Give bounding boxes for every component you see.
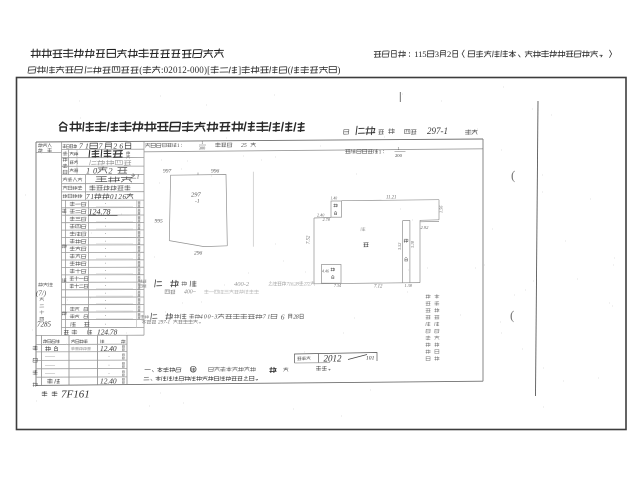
svg-text:(: ( (510, 308, 514, 323)
svg-text:1: 1 (201, 140, 203, 145)
svg-text:·: · (105, 246, 107, 252)
svg-text:·: · (105, 276, 107, 282)
svg-text:7.12: 7.12 (374, 284, 383, 289)
svg-text:200: 200 (395, 153, 403, 158)
svg-text:(: ( (139, 65, 142, 75)
svg-text:(: ( (288, 65, 291, 75)
svg-text:115: 115 (414, 49, 426, 59)
svg-text:——: —— (44, 364, 56, 369)
svg-text:1: 1 (136, 174, 139, 181)
svg-text:297-1: 297-1 (427, 126, 448, 136)
svg-text:3.18: 3.18 (410, 241, 415, 248)
svg-text:7.34: 7.34 (334, 283, 341, 288)
svg-text:): ) (337, 65, 340, 75)
svg-text:400~: 400~ (184, 289, 197, 296)
svg-text:71: 71 (86, 193, 94, 201)
svg-text:101: 101 (366, 356, 375, 362)
svg-text:7.52: 7.52 (307, 235, 312, 244)
svg-text:996: 996 (211, 169, 220, 175)
svg-text:·: · (108, 363, 110, 369)
svg-text:3.52: 3.52 (397, 243, 402, 250)
svg-text::02012-000)[: :02012-000)[ (161, 65, 210, 75)
svg-text:1: 1 (379, 149, 382, 155)
svg-text:297: 297 (191, 192, 202, 199)
svg-text:12.40: 12.40 (100, 377, 117, 386)
svg-text:1.40: 1.40 (331, 197, 338, 201)
svg-text:28: 28 (293, 315, 299, 321)
svg-text:(: ( (511, 168, 515, 183)
svg-text:——: —— (44, 372, 56, 377)
svg-text:296: 296 (194, 251, 203, 257)
svg-text:6: 6 (281, 312, 285, 321)
svg-text:1: 1 (398, 146, 400, 151)
svg-text:2012: 2012 (324, 354, 343, 364)
svg-text:2: 2 (108, 166, 112, 175)
svg-text:·: · (105, 231, 107, 237)
svg-text:25: 25 (241, 143, 247, 149)
svg-text:272: 272 (304, 282, 311, 288)
svg-text:12.40: 12.40 (100, 344, 117, 353)
svg-text:995: 995 (155, 219, 164, 225)
svg-text:400-2: 400-2 (234, 281, 250, 288)
svg-text:]: ] (238, 65, 241, 75)
svg-text:-1: -1 (195, 199, 200, 205)
svg-text:716.28: 716.28 (286, 282, 299, 288)
svg-text:·: · (105, 261, 107, 267)
svg-text:3: 3 (435, 49, 439, 59)
svg-text:11.21: 11.21 (386, 195, 396, 200)
svg-text:300: 300 (199, 146, 205, 151)
svg-text:1.56: 1.56 (439, 205, 444, 213)
svg-text:7285: 7285 (37, 321, 52, 329)
svg-text:7F161: 7F161 (61, 389, 90, 401)
svg-text:4.46: 4.46 (322, 269, 329, 274)
svg-text:——: —— (44, 355, 56, 360)
svg-text:71: 71 (263, 315, 271, 321)
svg-text:124.78: 124.78 (97, 328, 118, 337)
svg-text:0126: 0126 (110, 193, 127, 201)
svg-text:2.92: 2.92 (421, 225, 430, 230)
svg-text:·: · (108, 355, 110, 361)
svg-text:2.78: 2.78 (323, 217, 331, 222)
svg-text:297-1: 297-1 (158, 320, 171, 326)
svg-text:124.78: 124.78 (89, 207, 111, 216)
svg-text:(7/): (7/) (36, 290, 47, 298)
svg-text:400-3: 400-3 (200, 314, 218, 321)
svg-text:997: 997 (163, 169, 172, 175)
svg-text:1.38: 1.38 (405, 283, 413, 288)
svg-text:2: 2 (447, 49, 451, 59)
